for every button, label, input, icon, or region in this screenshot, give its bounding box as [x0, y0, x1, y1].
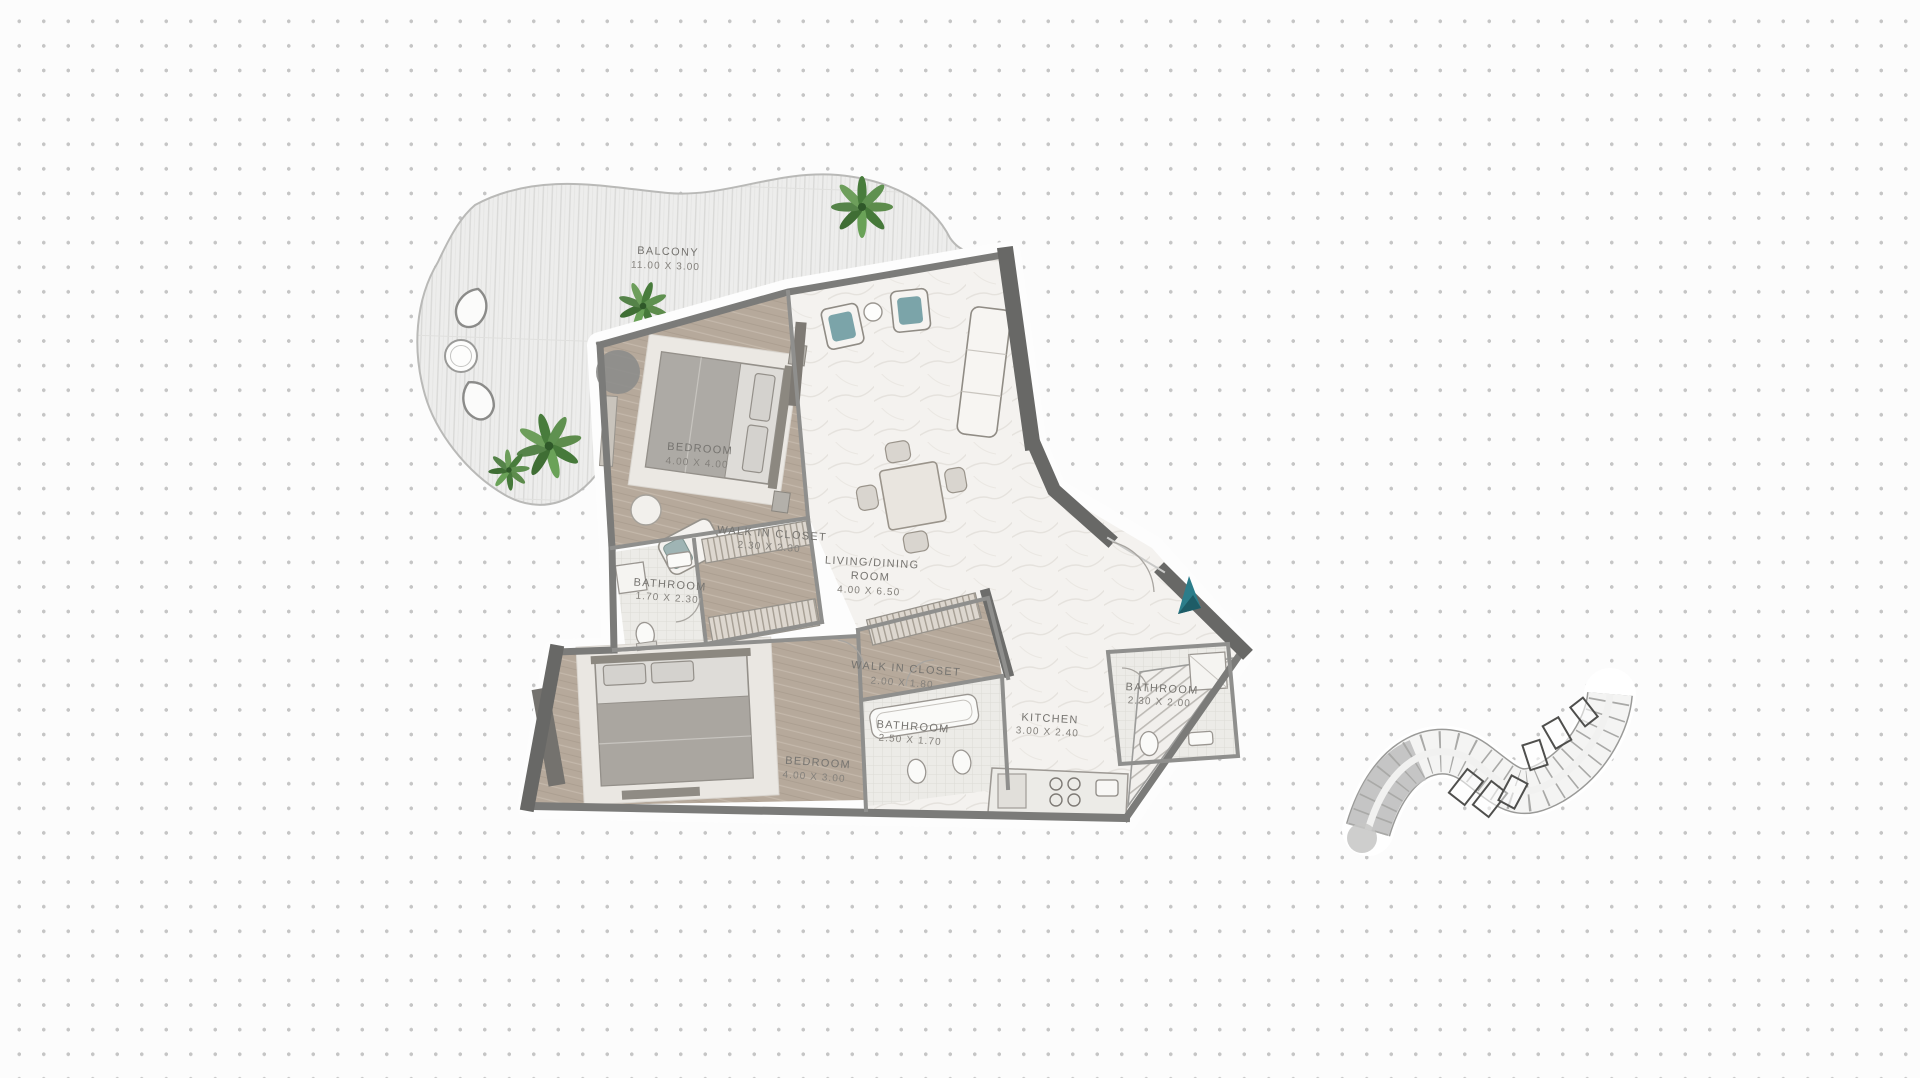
bedroom-1-ottoman [631, 495, 661, 525]
floor-plan-canvas: BALCONY 11.00 X 3.00 [0, 0, 1920, 1078]
building-key-plan [1347, 694, 1610, 853]
balcony-name: BALCONY [637, 245, 699, 259]
apartment-unit: BEDROOM 4.00 X 4.00 WALK IN CLOSET 2.30 … [528, 254, 1243, 818]
key-plan-end-marker [1347, 823, 1377, 853]
side-table-icon [864, 303, 882, 321]
palm-tree-icon [831, 176, 893, 238]
armchair-icon [890, 288, 931, 333]
bed-icon [591, 648, 758, 801]
living-dining-name2: ROOM [850, 570, 890, 584]
floor-plan-page: BALCONY 11.00 X 3.00 [0, 0, 1920, 1078]
armchair-icon [820, 302, 865, 350]
balcony-table-icon [445, 340, 477, 372]
